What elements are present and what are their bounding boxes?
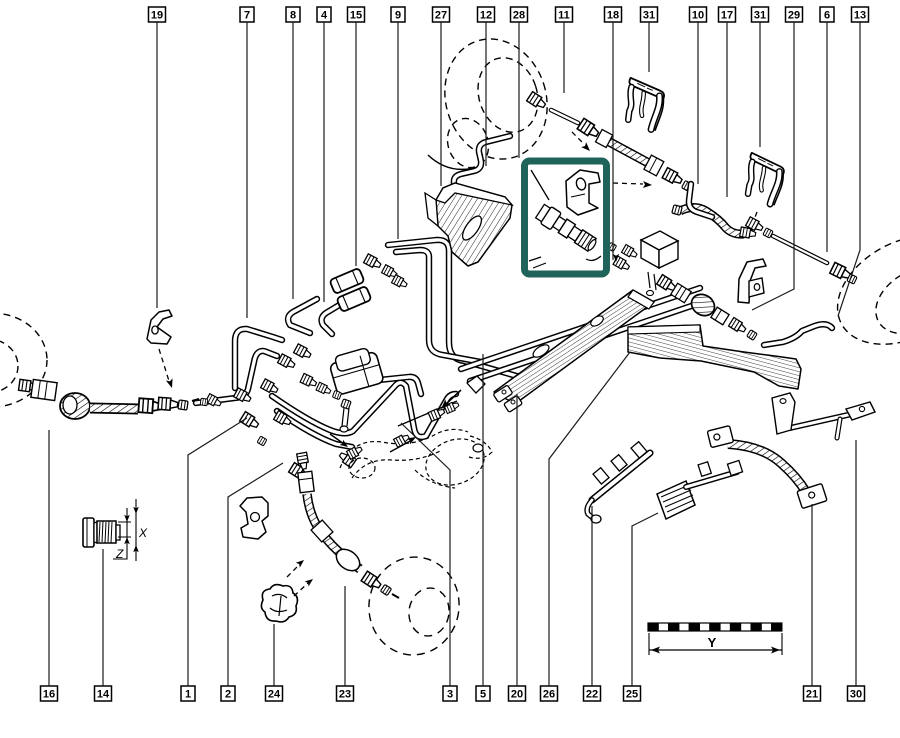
svg-text:4: 4 bbox=[321, 10, 328, 22]
svg-text:8: 8 bbox=[290, 10, 296, 22]
svg-text:Y: Y bbox=[708, 635, 717, 650]
svg-text:15: 15 bbox=[350, 10, 362, 22]
svg-text:31: 31 bbox=[643, 10, 655, 22]
svg-text:Z: Z bbox=[115, 547, 124, 561]
svg-text:1: 1 bbox=[185, 689, 191, 701]
svg-text:27: 27 bbox=[435, 10, 447, 22]
svg-text:17: 17 bbox=[721, 10, 733, 22]
svg-text:9: 9 bbox=[395, 10, 401, 22]
svg-text:18: 18 bbox=[607, 10, 619, 22]
svg-text:19: 19 bbox=[151, 10, 163, 22]
svg-text:22: 22 bbox=[586, 689, 598, 701]
svg-text:26: 26 bbox=[543, 689, 555, 701]
svg-text:25: 25 bbox=[626, 689, 638, 701]
svg-text:3: 3 bbox=[447, 689, 453, 701]
svg-text:12: 12 bbox=[480, 10, 492, 22]
svg-text:7: 7 bbox=[244, 10, 250, 22]
svg-text:29: 29 bbox=[788, 10, 800, 22]
svg-text:23: 23 bbox=[339, 689, 351, 701]
svg-text:28: 28 bbox=[513, 10, 525, 22]
svg-text:6: 6 bbox=[824, 10, 830, 22]
svg-text:16: 16 bbox=[43, 689, 55, 701]
svg-text:10: 10 bbox=[692, 10, 704, 22]
svg-text:14: 14 bbox=[97, 689, 110, 701]
svg-text:20: 20 bbox=[511, 689, 523, 701]
svg-text:31: 31 bbox=[754, 10, 766, 22]
svg-text:24: 24 bbox=[268, 689, 281, 701]
svg-text:X: X bbox=[138, 526, 148, 540]
svg-text:21: 21 bbox=[806, 689, 818, 701]
svg-text:5: 5 bbox=[480, 689, 486, 701]
svg-text:13: 13 bbox=[854, 10, 866, 22]
svg-text:2: 2 bbox=[225, 689, 231, 701]
svg-text:30: 30 bbox=[850, 689, 862, 701]
svg-text:11: 11 bbox=[558, 10, 570, 22]
